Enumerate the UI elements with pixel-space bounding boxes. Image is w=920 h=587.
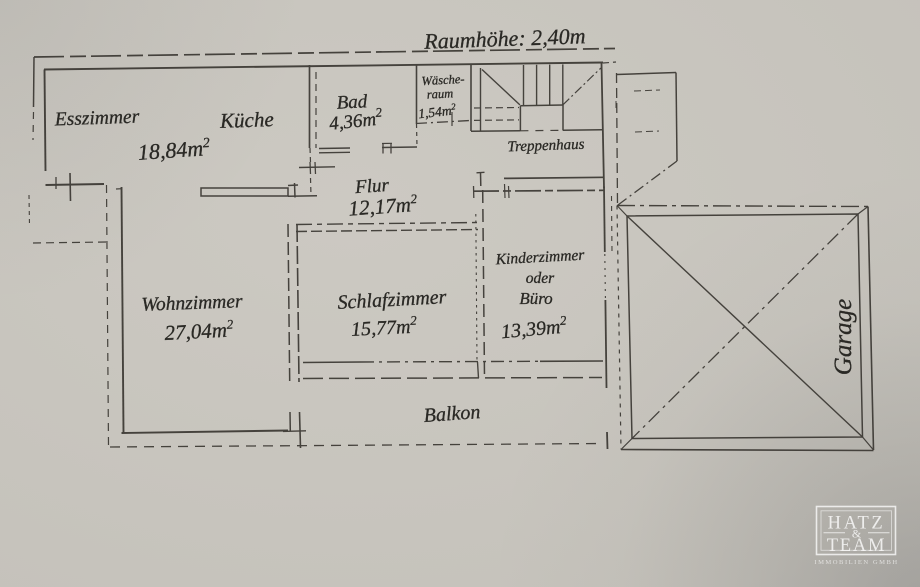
svg-text:12,17m2: 12,17m2 xyxy=(348,191,419,221)
svg-text:27,04m2: 27,04m2 xyxy=(164,316,235,345)
svg-text:TEAM: TEAM xyxy=(827,536,887,556)
svg-text:raum: raum xyxy=(426,86,453,101)
svg-text:IMMOBILIEN GMBH: IMMOBILIEN GMBH xyxy=(814,559,898,566)
svg-text:Esszimmer: Esszimmer xyxy=(53,107,140,131)
svg-text:Wäsche-: Wäsche- xyxy=(421,72,465,88)
svg-text:Balkon: Balkon xyxy=(423,401,481,427)
svg-text:oder: oder xyxy=(526,270,555,287)
svg-text:Küche: Küche xyxy=(219,107,274,133)
svg-text:Büro: Büro xyxy=(519,289,552,308)
svg-text:Treppenhaus: Treppenhaus xyxy=(507,137,585,156)
svg-text:18,84m2: 18,84m2 xyxy=(137,135,211,165)
svg-text:Garage: Garage xyxy=(830,299,857,375)
svg-text:Wohnzimmer: Wohnzimmer xyxy=(141,291,243,316)
